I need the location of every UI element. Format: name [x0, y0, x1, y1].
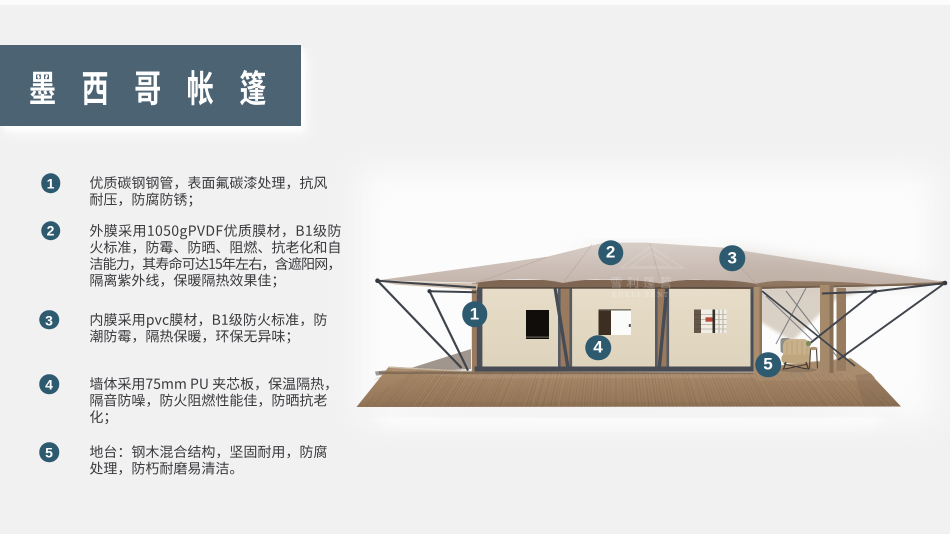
svg-text:XUELI TENT: XUELI TENT [612, 291, 671, 299]
